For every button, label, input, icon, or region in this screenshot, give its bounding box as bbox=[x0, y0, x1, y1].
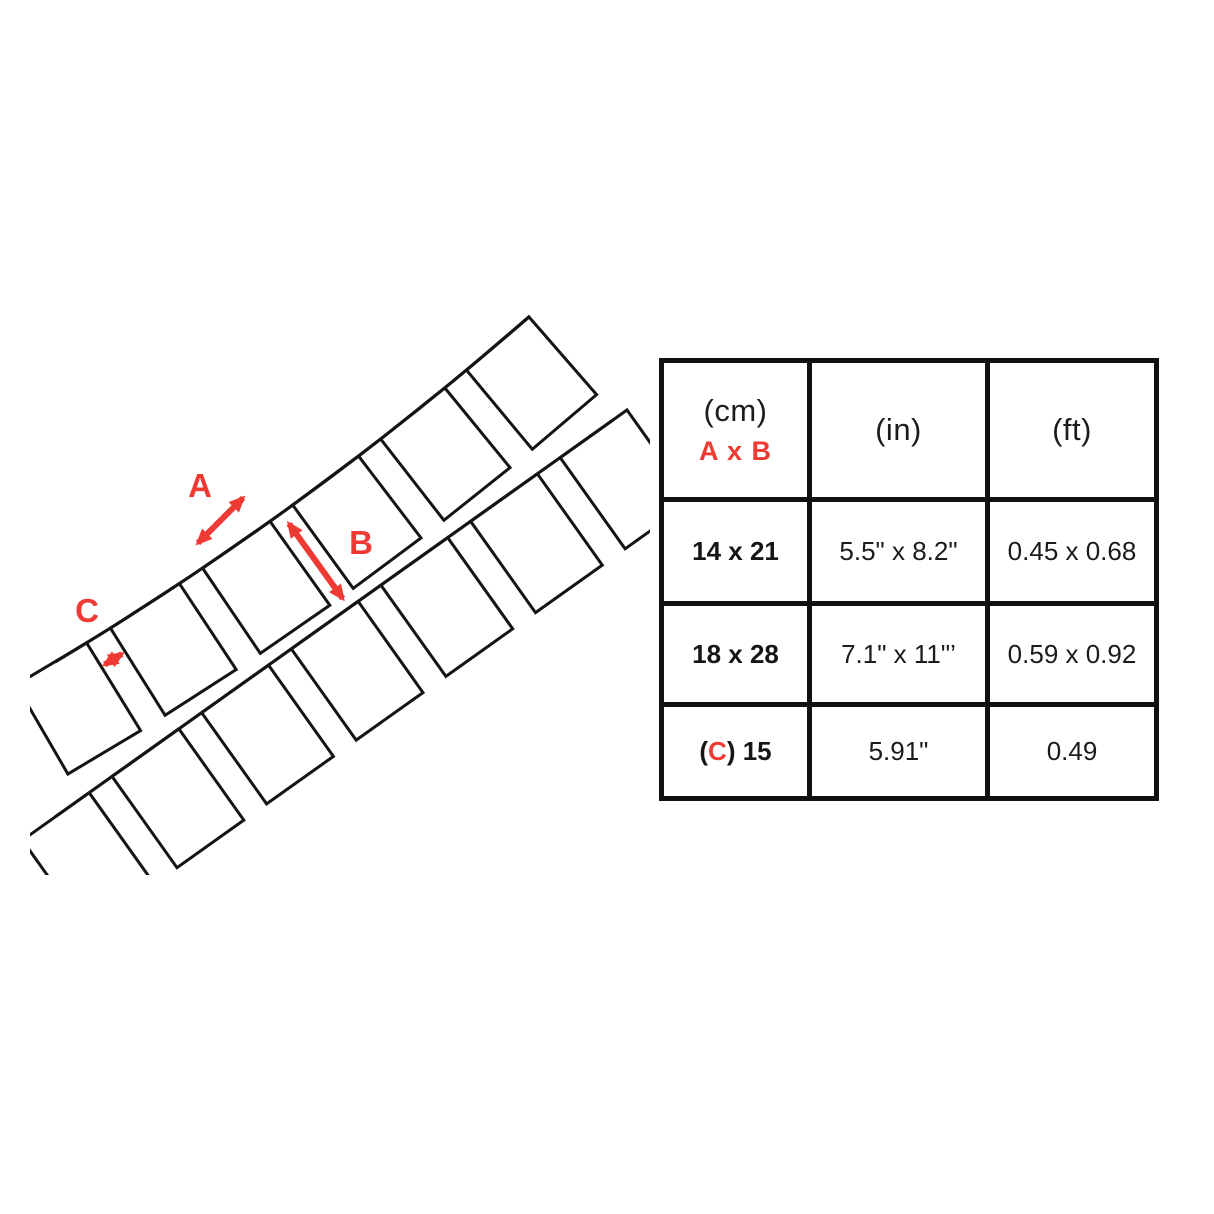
size-ft-cell: 0.59 x 0.92 bbox=[988, 604, 1157, 705]
size-ft-cell: 0.45 x 0.68 bbox=[988, 500, 1157, 604]
size-ft-cell: 0.49 bbox=[988, 705, 1157, 799]
flag bbox=[291, 601, 423, 740]
dimension-arrow-c bbox=[105, 654, 122, 665]
dimension-label-c: C bbox=[75, 592, 99, 629]
table-row: 14 x 21 5.5" x 8.2" 0.45 x 0.68 bbox=[662, 500, 1157, 604]
flag bbox=[381, 388, 510, 520]
size-chart-table: (cm) A x B (in) (ft) 14 x 21 5.5" x 8.2"… bbox=[659, 358, 1159, 801]
table-row: (C) 15 5.91" 0.49 bbox=[662, 705, 1157, 799]
header-cell-cm: (cm) A x B bbox=[662, 361, 810, 500]
size-cm-cell: 14 x 21 bbox=[662, 500, 810, 604]
flag bbox=[112, 729, 244, 868]
size-c-cell: (C) 15 bbox=[662, 705, 810, 799]
size-in-cell: 5.5" x 8.2" bbox=[810, 500, 988, 604]
paren-open: ( bbox=[699, 736, 708, 766]
dimension-label-b: B bbox=[349, 524, 373, 561]
paren-close-value: ) 15 bbox=[727, 736, 772, 766]
header-cell-ft: (ft) bbox=[988, 361, 1157, 500]
flag bbox=[30, 643, 141, 774]
infographic-canvas: A B C (cm) A x B (in) (ft) 14 x 21 5.5" … bbox=[0, 0, 1214, 1214]
header-axb-label: A x B bbox=[664, 436, 807, 467]
table-row: 18 x 28 7.1" x 11"’ 0.59 x 0.92 bbox=[662, 604, 1157, 705]
flag bbox=[202, 665, 334, 804]
flag bbox=[471, 474, 603, 613]
c-dimension-letter: C bbox=[708, 736, 727, 766]
table-header-row: (cm) A x B (in) (ft) bbox=[662, 361, 1157, 500]
dimension-label-a: A bbox=[188, 467, 212, 504]
size-cm-cell: 18 x 28 bbox=[662, 604, 810, 705]
header-cm-unit: (cm) bbox=[664, 393, 807, 429]
bunting-diagram: A B C bbox=[30, 290, 650, 875]
size-in-cell: 5.91" bbox=[810, 705, 988, 799]
size-in-cell: 7.1" x 11"’ bbox=[810, 604, 988, 705]
flag bbox=[110, 584, 236, 716]
flag bbox=[381, 538, 513, 677]
dimension-arrow-a bbox=[198, 498, 243, 543]
flag bbox=[467, 317, 597, 449]
header-cell-in: (in) bbox=[810, 361, 988, 500]
